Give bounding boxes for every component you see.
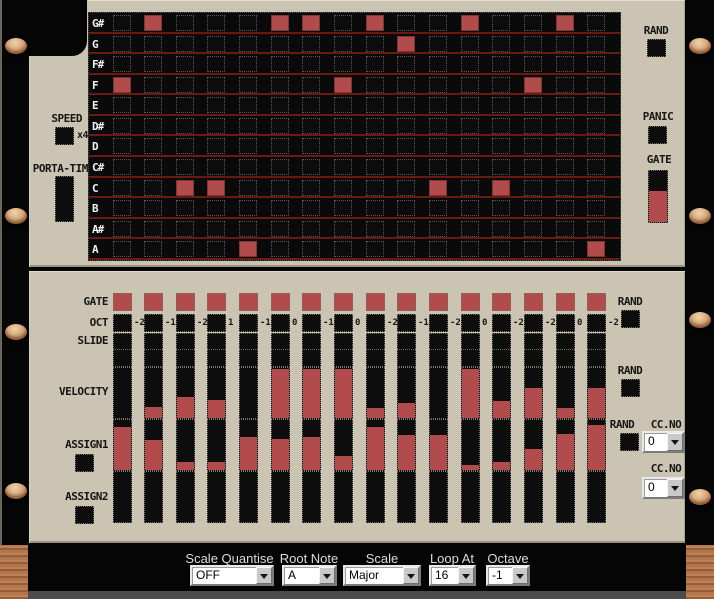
- note-cell[interactable]: [397, 241, 415, 257]
- dropdown-arrow-icon[interactable]: [667, 433, 683, 451]
- extra-step[interactable]: [176, 349, 195, 367]
- velocity-slider[interactable]: [207, 367, 226, 419]
- note-cell[interactable]: [207, 159, 225, 175]
- note-cell[interactable]: [113, 36, 131, 52]
- porta-time-slider[interactable]: [55, 176, 74, 222]
- gate-step[interactable]: [397, 293, 416, 311]
- extra-step[interactable]: [587, 349, 606, 367]
- gate-step[interactable]: [302, 293, 321, 311]
- rand-button-top[interactable]: [647, 39, 666, 57]
- note-cell[interactable]: [144, 36, 162, 52]
- note-cell[interactable]: [207, 241, 225, 257]
- note-cell[interactable]: [587, 15, 605, 31]
- gate-step[interactable]: [207, 293, 226, 311]
- note-cell[interactable]: [587, 200, 605, 216]
- assign1-slider[interactable]: [397, 419, 416, 471]
- oct-step[interactable]: [492, 314, 511, 332]
- note-cell[interactable]: [366, 180, 384, 196]
- note-cell[interactable]: [587, 138, 605, 154]
- note-cell[interactable]: [207, 97, 225, 113]
- rand-button-assign1[interactable]: [620, 433, 639, 451]
- note-cell[interactable]: [524, 118, 542, 134]
- note-cell[interactable]: [207, 56, 225, 72]
- note-cell[interactable]: [524, 138, 542, 154]
- assign2-slider[interactable]: [302, 471, 321, 523]
- assign2-slider[interactable]: [461, 471, 480, 523]
- note-cell[interactable]: [239, 180, 257, 196]
- oct-step[interactable]: [524, 314, 543, 332]
- note-cell[interactable]: [461, 118, 479, 134]
- dropdown-arrow-icon[interactable]: [667, 479, 683, 497]
- note-cell[interactable]: [176, 159, 194, 175]
- note-cell[interactable]: [366, 77, 384, 93]
- note-cell[interactable]: [429, 241, 447, 257]
- octave-select[interactable]: -1: [486, 565, 530, 586]
- extra-step[interactable]: [524, 349, 543, 367]
- extra-step[interactable]: [207, 349, 226, 367]
- assign1-button[interactable]: [75, 454, 94, 472]
- note-cell[interactable]: [492, 180, 510, 196]
- velocity-slider[interactable]: [144, 367, 163, 419]
- assign1-slider[interactable]: [271, 419, 290, 471]
- note-cell[interactable]: [144, 97, 162, 113]
- note-cell[interactable]: [113, 200, 131, 216]
- note-cell[interactable]: [113, 221, 131, 237]
- note-cell[interactable]: [524, 200, 542, 216]
- note-cell[interactable]: [271, 138, 289, 154]
- note-cell[interactable]: [271, 200, 289, 216]
- gate-step[interactable]: [366, 293, 385, 311]
- note-cell[interactable]: [397, 15, 415, 31]
- extra-step[interactable]: [556, 349, 575, 367]
- note-cell[interactable]: [334, 180, 352, 196]
- note-cell[interactable]: [334, 221, 352, 237]
- note-cell[interactable]: [524, 241, 542, 257]
- note-cell[interactable]: [239, 221, 257, 237]
- note-cell[interactable]: [429, 56, 447, 72]
- note-cell[interactable]: [366, 159, 384, 175]
- note-cell[interactable]: [113, 241, 131, 257]
- note-cell[interactable]: [524, 221, 542, 237]
- note-cell[interactable]: [461, 180, 479, 196]
- oct-step[interactable]: [366, 314, 385, 332]
- note-cell[interactable]: [397, 221, 415, 237]
- assign2-slider[interactable]: [334, 471, 353, 523]
- note-cell[interactable]: [556, 36, 574, 52]
- extra-step[interactable]: [239, 349, 258, 367]
- extra-step[interactable]: [113, 349, 132, 367]
- note-cell[interactable]: [397, 77, 415, 93]
- note-cell[interactable]: [144, 200, 162, 216]
- note-cell[interactable]: [587, 159, 605, 175]
- note-cell[interactable]: [113, 159, 131, 175]
- note-cell[interactable]: [239, 97, 257, 113]
- note-cell[interactable]: [271, 77, 289, 93]
- note-cell[interactable]: [587, 77, 605, 93]
- assign2-slider[interactable]: [397, 471, 416, 523]
- oct-step[interactable]: [461, 314, 480, 332]
- extra-step[interactable]: [334, 349, 353, 367]
- velocity-slider[interactable]: [113, 367, 132, 419]
- note-cell[interactable]: [271, 97, 289, 113]
- note-cell[interactable]: [587, 241, 605, 257]
- note-cell[interactable]: [397, 138, 415, 154]
- assign1-slider[interactable]: [556, 419, 575, 471]
- note-cell[interactable]: [302, 159, 320, 175]
- note-cell[interactable]: [366, 118, 384, 134]
- note-cell[interactable]: [524, 159, 542, 175]
- assign1-slider[interactable]: [587, 419, 606, 471]
- extra-step[interactable]: [302, 349, 321, 367]
- note-cell[interactable]: [113, 138, 131, 154]
- note-cell[interactable]: [397, 36, 415, 52]
- extra-step[interactable]: [144, 349, 163, 367]
- gate-step[interactable]: [461, 293, 480, 311]
- note-cell[interactable]: [271, 241, 289, 257]
- note-cell[interactable]: [176, 241, 194, 257]
- extra-step[interactable]: [397, 349, 416, 367]
- assign1-slider[interactable]: [144, 419, 163, 471]
- note-cell[interactable]: [334, 241, 352, 257]
- note-cell[interactable]: [302, 200, 320, 216]
- note-cell[interactable]: [492, 118, 510, 134]
- gate-step[interactable]: [176, 293, 195, 311]
- note-cell[interactable]: [207, 15, 225, 31]
- extra-step[interactable]: [492, 349, 511, 367]
- note-cell[interactable]: [429, 200, 447, 216]
- note-cell[interactable]: [207, 221, 225, 237]
- assign2-slider[interactable]: [429, 471, 448, 523]
- assign1-slider[interactable]: [461, 419, 480, 471]
- assign1-slider[interactable]: [429, 419, 448, 471]
- note-cell[interactable]: [429, 138, 447, 154]
- note-cell[interactable]: [144, 180, 162, 196]
- note-cell[interactable]: [366, 138, 384, 154]
- dropdown-arrow-icon[interactable]: [256, 567, 272, 584]
- note-cell[interactable]: [334, 15, 352, 31]
- note-cell[interactable]: [492, 77, 510, 93]
- gate-step[interactable]: [524, 293, 543, 311]
- rand-button-oct[interactable]: [621, 310, 640, 328]
- note-cell[interactable]: [429, 221, 447, 237]
- note-cell[interactable]: [366, 56, 384, 72]
- note-cell[interactable]: [556, 159, 574, 175]
- gate-step[interactable]: [271, 293, 290, 311]
- note-cell[interactable]: [207, 138, 225, 154]
- note-cell[interactable]: [113, 15, 131, 31]
- oct-step[interactable]: [207, 314, 226, 332]
- velocity-slider[interactable]: [492, 367, 511, 419]
- note-cell[interactable]: [302, 77, 320, 93]
- note-cell[interactable]: [239, 15, 257, 31]
- note-cell[interactable]: [429, 36, 447, 52]
- note-cell[interactable]: [397, 180, 415, 196]
- note-cell[interactable]: [366, 97, 384, 113]
- note-cell[interactable]: [144, 56, 162, 72]
- note-cell[interactable]: [239, 138, 257, 154]
- note-cell[interactable]: [492, 36, 510, 52]
- note-cell[interactable]: [113, 97, 131, 113]
- note-cell[interactable]: [397, 159, 415, 175]
- oct-step[interactable]: [144, 314, 163, 332]
- velocity-slider[interactable]: [334, 367, 353, 419]
- note-cell[interactable]: [113, 56, 131, 72]
- note-cell[interactable]: [271, 56, 289, 72]
- note-cell[interactable]: [144, 221, 162, 237]
- extra-step[interactable]: [429, 349, 448, 367]
- note-cell[interactable]: [587, 180, 605, 196]
- gate-step[interactable]: [556, 293, 575, 311]
- note-cell[interactable]: [366, 221, 384, 237]
- note-cell[interactable]: [302, 97, 320, 113]
- note-cell[interactable]: [429, 118, 447, 134]
- dropdown-arrow-icon[interactable]: [512, 567, 528, 584]
- velocity-slider[interactable]: [271, 367, 290, 419]
- note-cell[interactable]: [271, 118, 289, 134]
- velocity-slider[interactable]: [239, 367, 258, 419]
- note-cell[interactable]: [524, 180, 542, 196]
- velocity-slider[interactable]: [302, 367, 321, 419]
- note-cell[interactable]: [461, 15, 479, 31]
- note-cell[interactable]: [366, 200, 384, 216]
- note-cell[interactable]: [239, 36, 257, 52]
- assign1-slider[interactable]: [113, 419, 132, 471]
- velocity-slider[interactable]: [524, 367, 543, 419]
- note-cell[interactable]: [302, 221, 320, 237]
- note-cell[interactable]: [302, 15, 320, 31]
- note-cell[interactable]: [176, 77, 194, 93]
- note-cell[interactable]: [556, 15, 574, 31]
- note-cell[interactable]: [239, 77, 257, 93]
- note-cell[interactable]: [334, 36, 352, 52]
- note-cell[interactable]: [239, 200, 257, 216]
- assign2-slider[interactable]: [271, 471, 290, 523]
- oct-step[interactable]: [587, 314, 606, 332]
- note-cell[interactable]: [587, 36, 605, 52]
- note-cell[interactable]: [271, 180, 289, 196]
- gate-step[interactable]: [492, 293, 511, 311]
- assign1-slider[interactable]: [366, 419, 385, 471]
- note-cell[interactable]: [207, 36, 225, 52]
- oct-step[interactable]: [271, 314, 290, 332]
- note-cell[interactable]: [397, 118, 415, 134]
- gate-step[interactable]: [587, 293, 606, 311]
- note-cell[interactable]: [397, 200, 415, 216]
- note-cell[interactable]: [397, 56, 415, 72]
- note-cell[interactable]: [556, 180, 574, 196]
- note-cell[interactable]: [556, 77, 574, 93]
- oct-step[interactable]: [239, 314, 258, 332]
- note-cell[interactable]: [334, 118, 352, 134]
- loop-at-select[interactable]: 16: [429, 565, 476, 586]
- scale-select[interactable]: Major: [343, 565, 421, 586]
- gate-slider[interactable]: [648, 170, 668, 223]
- note-cell[interactable]: [492, 241, 510, 257]
- velocity-slider[interactable]: [366, 367, 385, 419]
- note-cell[interactable]: [366, 36, 384, 52]
- assign1-slider[interactable]: [176, 419, 195, 471]
- assign2-button[interactable]: [75, 506, 94, 524]
- note-cell[interactable]: [366, 241, 384, 257]
- note-cell[interactable]: [461, 36, 479, 52]
- note-cell[interactable]: [461, 138, 479, 154]
- assign2-slider[interactable]: [366, 471, 385, 523]
- assign2-slider[interactable]: [144, 471, 163, 523]
- assign1-slider[interactable]: [239, 419, 258, 471]
- note-cell[interactable]: [587, 118, 605, 134]
- note-cell[interactable]: [302, 241, 320, 257]
- velocity-slider[interactable]: [587, 367, 606, 419]
- note-cell[interactable]: [461, 159, 479, 175]
- note-cell[interactable]: [556, 138, 574, 154]
- note-cell[interactable]: [144, 138, 162, 154]
- note-cell[interactable]: [492, 56, 510, 72]
- note-cell[interactable]: [176, 15, 194, 31]
- velocity-slider[interactable]: [397, 367, 416, 419]
- oct-step[interactable]: [429, 314, 448, 332]
- note-cell[interactable]: [587, 56, 605, 72]
- note-cell[interactable]: [429, 159, 447, 175]
- velocity-slider[interactable]: [461, 367, 480, 419]
- note-cell[interactable]: [302, 36, 320, 52]
- note-cell[interactable]: [429, 77, 447, 93]
- dropdown-arrow-icon[interactable]: [403, 567, 419, 584]
- note-cell[interactable]: [556, 241, 574, 257]
- note-cell[interactable]: [492, 97, 510, 113]
- note-cell[interactable]: [176, 138, 194, 154]
- note-cell[interactable]: [207, 180, 225, 196]
- note-cell[interactable]: [271, 221, 289, 237]
- assign2-slider[interactable]: [556, 471, 575, 523]
- assign1-slider[interactable]: [492, 419, 511, 471]
- oct-step[interactable]: [176, 314, 195, 332]
- oct-step[interactable]: [556, 314, 575, 332]
- note-cell[interactable]: [239, 56, 257, 72]
- note-cell[interactable]: [429, 97, 447, 113]
- scale-quantise-select[interactable]: OFF: [190, 565, 274, 586]
- note-cell[interactable]: [176, 221, 194, 237]
- note-cell[interactable]: [207, 118, 225, 134]
- note-cell[interactable]: [239, 159, 257, 175]
- note-cell[interactable]: [556, 56, 574, 72]
- dropdown-arrow-icon[interactable]: [458, 567, 474, 584]
- velocity-slider[interactable]: [429, 367, 448, 419]
- note-cell[interactable]: [492, 200, 510, 216]
- note-cell[interactable]: [397, 97, 415, 113]
- note-cell[interactable]: [144, 241, 162, 257]
- note-cell[interactable]: [271, 159, 289, 175]
- note-cell[interactable]: [176, 97, 194, 113]
- oct-step[interactable]: [113, 314, 132, 332]
- extra-step[interactable]: [366, 349, 385, 367]
- note-cell[interactable]: [334, 138, 352, 154]
- note-cell[interactable]: [144, 15, 162, 31]
- note-cell[interactable]: [587, 221, 605, 237]
- assign2-slider[interactable]: [524, 471, 543, 523]
- note-cell[interactable]: [524, 77, 542, 93]
- note-cell[interactable]: [524, 36, 542, 52]
- assign1-slider[interactable]: [334, 419, 353, 471]
- note-cell[interactable]: [239, 118, 257, 134]
- assign2-slider[interactable]: [239, 471, 258, 523]
- note-cell[interactable]: [461, 221, 479, 237]
- note-cell[interactable]: [176, 118, 194, 134]
- note-cell[interactable]: [113, 180, 131, 196]
- note-cell[interactable]: [556, 200, 574, 216]
- note-cell[interactable]: [334, 77, 352, 93]
- note-cell[interactable]: [302, 118, 320, 134]
- extra-step[interactable]: [461, 349, 480, 367]
- speed-button[interactable]: [55, 127, 74, 145]
- note-cell[interactable]: [556, 221, 574, 237]
- assign2-slider[interactable]: [176, 471, 195, 523]
- note-cell[interactable]: [524, 56, 542, 72]
- note-cell[interactable]: [492, 138, 510, 154]
- note-cell[interactable]: [524, 97, 542, 113]
- velocity-slider[interactable]: [176, 367, 195, 419]
- note-cell[interactable]: [461, 56, 479, 72]
- note-cell[interactable]: [461, 77, 479, 93]
- ccno-select-assign2[interactable]: 0: [642, 477, 685, 499]
- assign2-slider[interactable]: [587, 471, 606, 523]
- note-cell[interactable]: [334, 200, 352, 216]
- note-cell[interactable]: [429, 180, 447, 196]
- note-cell[interactable]: [302, 138, 320, 154]
- assign1-slider[interactable]: [524, 419, 543, 471]
- ccno-select-assign1[interactable]: 0: [642, 431, 685, 453]
- assign2-slider[interactable]: [113, 471, 132, 523]
- note-cell[interactable]: [144, 159, 162, 175]
- note-cell[interactable]: [302, 56, 320, 72]
- note-cell[interactable]: [461, 241, 479, 257]
- gate-step[interactable]: [239, 293, 258, 311]
- note-cell[interactable]: [176, 36, 194, 52]
- note-cell[interactable]: [429, 15, 447, 31]
- gate-step[interactable]: [113, 293, 132, 311]
- assign1-slider[interactable]: [207, 419, 226, 471]
- gate-step[interactable]: [334, 293, 353, 311]
- panic-button[interactable]: [648, 126, 667, 144]
- note-cell[interactable]: [113, 118, 131, 134]
- velocity-slider[interactable]: [556, 367, 575, 419]
- note-cell[interactable]: [334, 97, 352, 113]
- note-cell[interactable]: [176, 56, 194, 72]
- note-cell[interactable]: [113, 77, 131, 93]
- note-cell[interactable]: [334, 56, 352, 72]
- note-cell[interactable]: [302, 180, 320, 196]
- note-cell[interactable]: [207, 200, 225, 216]
- note-cell[interactable]: [492, 221, 510, 237]
- dropdown-arrow-icon[interactable]: [319, 567, 335, 584]
- note-cell[interactable]: [176, 200, 194, 216]
- note-cell[interactable]: [524, 15, 542, 31]
- oct-step[interactable]: [334, 314, 353, 332]
- assign1-slider[interactable]: [302, 419, 321, 471]
- oct-step[interactable]: [302, 314, 321, 332]
- note-cell[interactable]: [144, 77, 162, 93]
- note-cell[interactable]: [239, 241, 257, 257]
- note-cell[interactable]: [461, 97, 479, 113]
- note-cell[interactable]: [176, 180, 194, 196]
- note-cell[interactable]: [271, 15, 289, 31]
- note-cell[interactable]: [587, 97, 605, 113]
- note-cell[interactable]: [492, 15, 510, 31]
- note-cell[interactable]: [144, 118, 162, 134]
- root-note-select[interactable]: A: [282, 565, 337, 586]
- note-cell[interactable]: [461, 200, 479, 216]
- rand-button-velocity[interactable]: [621, 379, 640, 397]
- note-cell[interactable]: [271, 36, 289, 52]
